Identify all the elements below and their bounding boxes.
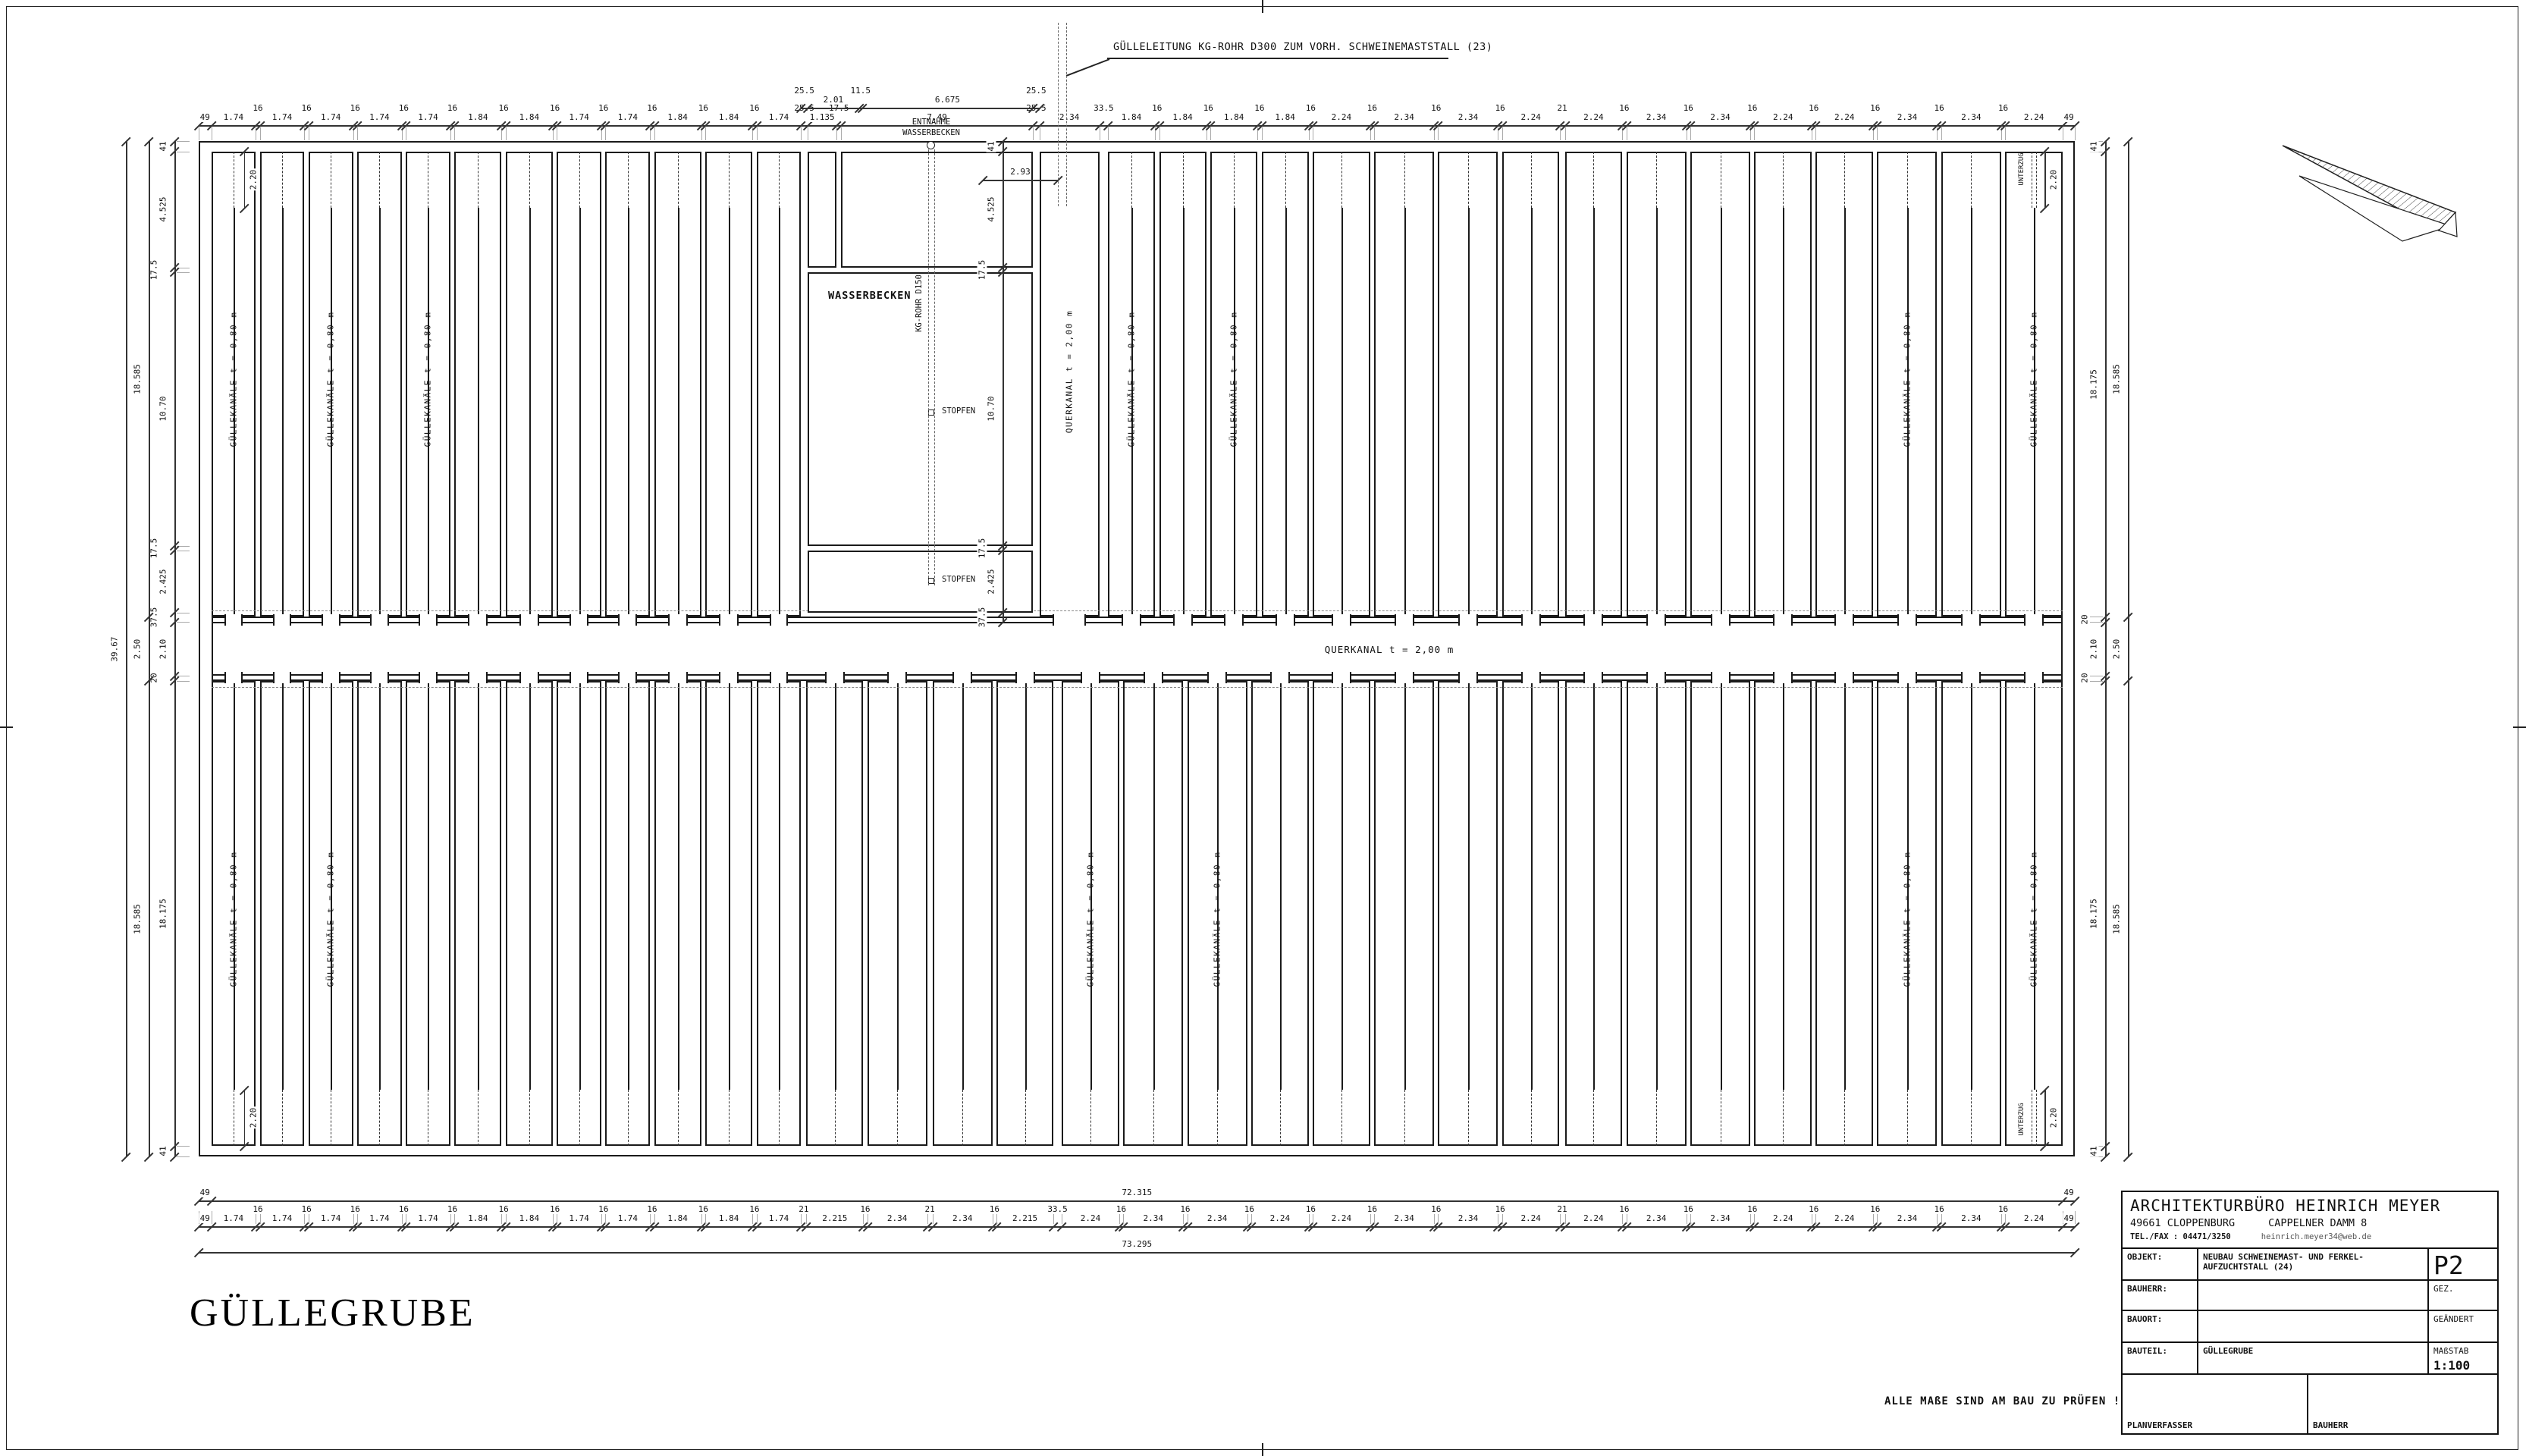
dimension-label: 18.585 — [133, 363, 143, 395]
dimension-label: 2.34 — [1897, 112, 1919, 122]
witness-line — [2090, 617, 2103, 617]
witness-line — [1877, 127, 1878, 140]
dimension-label: 16 — [1808, 1204, 1819, 1214]
witness-line — [177, 613, 190, 613]
dimension-line — [199, 1252, 2075, 1254]
dimension-label: 49 — [199, 1188, 211, 1197]
page-title: GÜLLEGRUBE — [190, 1291, 475, 1335]
stopfen-symbol-2 — [928, 578, 934, 584]
dimension-label: 16 — [1683, 103, 1694, 113]
dimension-label: 18.175 — [2089, 898, 2099, 930]
witness-line — [406, 127, 406, 140]
dimension-label: 16 — [1934, 1204, 1945, 1214]
dimension-label: 16 — [1746, 1204, 1758, 1214]
dimension-label: 49 — [2063, 1188, 2075, 1197]
dimension-label: 16 — [1869, 1204, 1881, 1214]
witness-line — [2090, 676, 2103, 676]
dimension-label: 4.525 — [158, 196, 168, 223]
planverfasser-label: PLANVERFASSER — [2123, 1375, 2308, 1433]
drawing-sheet: GÜLLEKANÄLE t = 0,80 m2.20GÜLLEKANÄLE t … — [0, 0, 2526, 1456]
dimension-line — [174, 141, 176, 1156]
bauort-value — [2197, 1310, 2427, 1341]
dimension-label: 16 — [1367, 103, 1378, 113]
dimension-label: 16 — [1495, 1204, 1506, 1214]
witness-line — [506, 127, 507, 140]
dimension-label: 1.135 — [809, 112, 836, 122]
dimension-label: 1.74 — [417, 112, 439, 122]
witness-line — [2075, 1211, 2076, 1224]
dimension-line — [2105, 141, 2107, 1156]
wasserbecken-label: WASSERBECKEN — [828, 290, 912, 302]
objekt-value-line1: NEUBAU SCHWEINEMAST- UND FERKEL- — [2203, 1252, 2423, 1262]
querkanal-band-label: QUERKANAL t = 2,00 m — [1325, 644, 1454, 655]
objekt-label: OBJEKT: — [2123, 1247, 2197, 1279]
dimension-label: 2.34 — [886, 1213, 908, 1223]
dimension-label: 1.74 — [271, 1213, 293, 1223]
dimension-label: 16 — [1305, 1204, 1316, 1214]
top-pipe-note-underline — [1107, 58, 1448, 59]
dimension-label: 1.84 — [467, 1213, 489, 1223]
dimension-label: 18.175 — [2089, 369, 2099, 400]
dimension-label: 16 — [1869, 103, 1881, 113]
objekt-value-line2: AUFZUCHTSTALL (24) — [2203, 1262, 2423, 1272]
dimension-label: 1.74 — [568, 1213, 590, 1223]
dimension-label: 2.34 — [1207, 1213, 1228, 1223]
dimension-label: 16 — [698, 103, 709, 113]
dimension-label: 41 — [158, 140, 168, 152]
witness-line — [212, 1211, 212, 1224]
dimension-label: 1.84 — [519, 1213, 541, 1223]
dimension-label: 2.34 — [1960, 112, 1982, 122]
dimension-label: 2.50 — [2112, 638, 2122, 660]
frame-tick — [1262, 1443, 1263, 1456]
dimension-label: 1.74 — [369, 112, 391, 122]
witness-line — [177, 681, 190, 682]
dimension-label: 1.74 — [768, 1213, 790, 1223]
dimension-label: 20 — [2080, 613, 2090, 625]
dimension-label: 16 — [252, 103, 263, 113]
witness-line — [260, 127, 261, 140]
dimension-label: 2.24 — [2023, 1213, 2045, 1223]
dimension-label: 1.74 — [320, 112, 342, 122]
dimension-label: 16 — [1934, 103, 1945, 113]
dimension-label: 1.74 — [320, 1213, 342, 1223]
dimension-label: 2.34 — [1709, 1213, 1731, 1223]
dimension-label: 1.74 — [369, 1213, 391, 1223]
dimension-label: 2.24 — [2023, 112, 2045, 122]
dimension-label: 2.215 — [1012, 1213, 1038, 1223]
plan-number: P2 — [2427, 1247, 2497, 1279]
dimension-label: 2.425 — [987, 568, 996, 595]
dimension-label: 21 — [798, 1204, 809, 1214]
witness-line — [1108, 127, 1109, 140]
dimension-label: 4.525 — [987, 196, 996, 223]
geaendert-label: GEÄNDERT — [2427, 1310, 2497, 1341]
dimension-label: 2.24 — [1772, 112, 1794, 122]
dimension-label: 2.24 — [1080, 1213, 1102, 1223]
dimension-label: 16 — [398, 103, 409, 113]
witness-line — [654, 127, 655, 140]
frame-tick — [0, 726, 13, 728]
dimension-label: 49 — [199, 1213, 211, 1223]
gez-label: GEZ. — [2427, 1279, 2497, 1310]
witness-line — [1040, 127, 1040, 140]
dimension-label: 16 — [1618, 103, 1630, 113]
witness-line — [2075, 127, 2076, 140]
stopfen-symbol-1 — [928, 409, 934, 416]
dimension-label: 16 — [549, 1204, 560, 1214]
dimension-label: 10.70 — [158, 396, 168, 422]
witness-line — [705, 127, 706, 140]
bauteil-label: BAUTEIL: — [2123, 1341, 2197, 1373]
dimension-label: 18.585 — [2112, 903, 2122, 935]
dimension-label: 16 — [1618, 1204, 1630, 1214]
dimension-label: 1.84 — [519, 112, 541, 122]
dimension-label: 16 — [1203, 103, 1214, 113]
witness-line — [1565, 127, 1566, 140]
dimension-label: 2.50 — [133, 638, 143, 660]
dimension-label: 21 — [1556, 103, 1567, 113]
dimension-label: 2.10 — [158, 638, 168, 660]
firm-city: 49661 CLOPPENBURG — [2130, 1217, 2235, 1229]
dimension-label: 16 — [598, 103, 609, 113]
witness-line — [2005, 127, 2006, 140]
witness-line — [1313, 127, 1313, 140]
witness-line — [1754, 127, 1755, 140]
witness-line — [177, 272, 190, 273]
dimension-label: 16 — [549, 103, 560, 113]
dimension-label: 41 — [2089, 140, 2099, 152]
witness-line — [1627, 127, 1627, 140]
dimension-label: 16 — [1244, 1204, 1255, 1214]
dimension-label: 2.215 — [821, 1213, 848, 1223]
dimension-label: 2.34 — [952, 1213, 974, 1223]
dimension-label: 2.24 — [1772, 1213, 1794, 1223]
witness-line — [1100, 127, 1100, 140]
dimension-label: 16 — [698, 1204, 709, 1214]
dimension-label: 37.5 — [149, 607, 159, 629]
entnahme-label-line2: WASSERBECKEN — [902, 128, 960, 137]
witness-line — [801, 127, 802, 140]
dimension-label: 18.585 — [2112, 363, 2122, 395]
dimension-label: 2.34 — [1897, 1213, 1919, 1223]
dimension-label: 49 — [2063, 112, 2075, 122]
dimension-label: 1.84 — [667, 1213, 689, 1223]
kg-rohr-d150-pipe — [934, 149, 935, 585]
dimension-label: 2.34 — [1059, 112, 1081, 122]
dimension-label: 2.34 — [1646, 112, 1668, 122]
dimension-label: 1.74 — [568, 112, 590, 122]
dimension-label: 2.24 — [1331, 1213, 1353, 1223]
bauherr-label: BAUHERR: — [2123, 1279, 2197, 1310]
dimension-label: 2.24 — [1834, 1213, 1856, 1223]
dimension-label: 1.74 — [271, 112, 293, 122]
witness-line — [177, 141, 190, 142]
dimension-label: 39.67 — [110, 635, 120, 662]
dimension-label: 72.315 — [1121, 1188, 1153, 1197]
title-block: ARCHITEKTURBÜRO HEINRICH MEYER 49661 CLO… — [2121, 1191, 2499, 1435]
witness-line — [557, 127, 557, 140]
dimension-label: 6.675 — [934, 95, 961, 105]
dimension-label: 2.34 — [1960, 1213, 1982, 1223]
dimension-label: 16 — [598, 1204, 609, 1214]
dimension-label: 2.10 — [2089, 638, 2099, 660]
dimension-label: 16 — [398, 1204, 409, 1214]
dimension-label: 1.84 — [1223, 112, 1245, 122]
dimension-label: 2.24 — [1583, 112, 1605, 122]
witness-line — [1815, 127, 1816, 140]
witness-line — [177, 152, 190, 152]
dimension-line — [199, 125, 2075, 127]
dimension-label: 1.84 — [667, 112, 689, 122]
dimension-label: 2.24 — [1583, 1213, 1605, 1223]
dimension-label: 1.84 — [718, 112, 740, 122]
dimension-label: 16 — [1254, 103, 1265, 113]
witness-line — [177, 551, 190, 551]
stopfen-label-2: STOPFEN — [942, 575, 975, 584]
dimension-label: 16 — [859, 1204, 871, 1214]
dimension-label: 2.24 — [1520, 1213, 1542, 1223]
dimension-label: 16 — [748, 1204, 760, 1214]
dimension-label: 10.70 — [987, 396, 996, 422]
dimension-label: 2.24 — [1331, 112, 1353, 122]
firm-name: ARCHITEKTURBÜRO HEINRICH MEYER — [2130, 1197, 2490, 1215]
dimension-line — [983, 180, 1058, 181]
bauherr-footer-label: BAUHERR — [2308, 1375, 2497, 1433]
footnote: ALLE MAßE SIND AM BAU ZU PRÜFEN ! — [1884, 1395, 2120, 1407]
dimension-label: 16 — [1179, 1204, 1191, 1214]
dimension-line — [2128, 141, 2129, 1156]
dimension-label: 37.5 — [977, 607, 987, 629]
dimension-label: 2.93 — [1009, 167, 1031, 177]
dimension-label: 16 — [350, 1204, 361, 1214]
firm-phone: TEL./FAX : 04471/3250 — [2130, 1232, 2231, 1241]
witness-line — [177, 622, 190, 623]
witness-line — [605, 127, 606, 140]
dimension-label: 20 — [2080, 673, 2090, 684]
witness-line — [1374, 127, 1375, 140]
title-block-header: ARCHITEKTURBÜRO HEINRICH MEYER 49661 CLO… — [2123, 1192, 2497, 1247]
dimension-label: 17.5 — [149, 259, 159, 281]
dimension-label: 1.84 — [718, 1213, 740, 1223]
witness-line — [212, 127, 212, 140]
dimension-label: 16 — [1430, 1204, 1442, 1214]
dimension-label: 49 — [199, 112, 211, 122]
dimension-line — [126, 141, 127, 1156]
dimension-label: 1.74 — [617, 112, 639, 122]
dimension-line — [199, 1200, 2075, 1202]
dimension-label: 17.5 — [149, 537, 159, 559]
dimension-label: 16 — [1746, 103, 1758, 113]
dimension-label: 2.24 — [1520, 112, 1542, 122]
dimension-label: 16 — [497, 1204, 509, 1214]
dimension-label: 2.01 — [823, 95, 845, 105]
firm-street: CAPPELNER DAMM 8 — [2268, 1217, 2367, 1229]
dimension-label: 16 — [301, 1204, 312, 1214]
top-pipe-note: GÜLLELEITUNG KG-ROHR D300 ZUM VORH. SCHW… — [1113, 41, 1492, 53]
dimension-label: 2.34 — [1709, 112, 1731, 122]
dimension-label: 16 — [1683, 1204, 1694, 1214]
frame-tick — [1262, 0, 1263, 13]
dimension-label: 16 — [1367, 1204, 1378, 1214]
witness-line — [757, 127, 758, 140]
dimension-label: 16 — [646, 103, 657, 113]
dimension-label: 16 — [447, 103, 458, 113]
dimension-label: 16 — [1997, 1204, 2009, 1214]
dimension-label: 41 — [987, 140, 996, 152]
dimension-label: 1.84 — [1274, 112, 1296, 122]
north-arrow-icon — [2275, 130, 2472, 259]
dimension-label: 16 — [1430, 103, 1442, 113]
kg-rohr-d150-label: KG-ROHR D150 — [915, 275, 924, 332]
dimension-label: 16 — [1997, 103, 2009, 113]
witness-line — [1159, 127, 1160, 140]
dimension-label: 25.5 — [1025, 86, 1047, 96]
dimension-label: 21 — [1556, 1204, 1567, 1214]
dimension-label: 16 — [1808, 103, 1819, 113]
dimension-label: 11.5 — [850, 86, 872, 96]
dimension-label: 1.74 — [768, 112, 790, 122]
witness-line — [2063, 127, 2063, 140]
massstab-label: MAßSTAB — [2433, 1346, 2493, 1356]
witness-line — [1941, 127, 1942, 140]
witness-line — [177, 1156, 190, 1157]
witness-line — [2090, 622, 2103, 623]
dimension-label: 17.5 — [977, 537, 987, 559]
dimension-label: 16 — [989, 1204, 1000, 1214]
witness-line — [1262, 127, 1263, 140]
witness-line — [2090, 681, 2103, 682]
kg-rohr-d300-pipe — [1058, 23, 1059, 206]
bauherr-value — [2197, 1279, 2427, 1310]
dimension-label: 2.24 — [1834, 112, 1856, 122]
dimension-label: 2.34 — [1393, 1213, 1415, 1223]
dimension-line — [801, 108, 1039, 109]
witness-line — [199, 127, 199, 140]
dimension-label: 16 — [646, 1204, 657, 1214]
dimension-label: 2.24 — [1269, 1213, 1291, 1223]
dimension-label: 16 — [447, 1204, 458, 1214]
dimension-label: 17.5 — [977, 259, 987, 281]
bauteil-value: GÜLLEGRUBE — [2197, 1341, 2427, 1373]
firm-email: heinrich.meyer34@web.de — [2261, 1232, 2371, 1241]
witness-line — [1210, 127, 1211, 140]
dimension-label: 1.84 — [467, 112, 489, 122]
dimension-label: 1.74 — [223, 112, 245, 122]
dimension-label: 25.5 — [793, 86, 815, 96]
dimension-label: 16 — [497, 103, 509, 113]
witness-line — [357, 127, 358, 140]
dimension-label: 16 — [252, 1204, 263, 1214]
dimension-label: 41 — [158, 1146, 168, 1157]
witness-line — [808, 127, 808, 140]
witness-line — [454, 127, 455, 140]
dimension-label: 16 — [301, 103, 312, 113]
dimension-label: 1.84 — [1121, 112, 1143, 122]
frame-tick — [2513, 726, 2526, 728]
dimension-label: 1.84 — [1172, 112, 1194, 122]
kg-rohr-d150-pipe — [928, 149, 929, 585]
dimension-label: 1.74 — [417, 1213, 439, 1223]
dimension-label: 33.5 — [1046, 1204, 1068, 1214]
bauort-label: BAUORT: — [2123, 1310, 2197, 1341]
objekt-value: NEUBAU SCHWEINEMAST- UND FERKEL- AUFZUCH… — [2197, 1247, 2427, 1279]
dimension-label: 18.175 — [158, 898, 168, 930]
witness-line — [1502, 127, 1503, 140]
massstab-cell: MAßSTAB 1:100 — [2427, 1341, 2497, 1373]
entnahme-symbol — [927, 141, 935, 149]
dimension-line — [149, 141, 150, 1156]
entnahme-label-line1: ENTNAHME — [912, 118, 951, 127]
stopfen-label-1: STOPFEN — [942, 406, 975, 416]
massstab-value: 1:100 — [2433, 1358, 2493, 1373]
dimension-label: 2.425 — [158, 568, 168, 595]
dimension-label: 1.74 — [617, 1213, 639, 1223]
witness-line — [1690, 127, 1691, 140]
witness-line — [1438, 127, 1439, 140]
dimension-label: 2.34 — [1458, 112, 1480, 122]
dimension-label: 49 — [2063, 1213, 2075, 1223]
dimension-label: 16 — [1305, 103, 1316, 113]
dimension-label: 2.34 — [1142, 1213, 1164, 1223]
dimension-label: 2.34 — [1646, 1213, 1668, 1223]
dimension-label: 33.5 — [1093, 103, 1115, 113]
dimension-label: 2.34 — [1458, 1213, 1480, 1223]
dimension-label: 21 — [924, 1204, 936, 1214]
dimension-label: 73.295 — [1121, 1239, 1153, 1249]
dimension-label: 16 — [1151, 103, 1163, 113]
witness-line — [309, 127, 309, 140]
dimension-label: 16 — [1116, 1204, 1127, 1214]
dimension-label: 2.34 — [1393, 112, 1415, 122]
dimension-label: 18.585 — [133, 903, 143, 935]
dimension-label: 16 — [748, 103, 760, 113]
dimension-label: 16 — [350, 103, 361, 113]
kg-rohr-d300-pipe — [1066, 23, 1067, 206]
dimension-line — [199, 1226, 2075, 1228]
witness-line — [177, 1146, 190, 1147]
dimension-label: 1.74 — [223, 1213, 245, 1223]
witness-line — [841, 127, 842, 140]
dimension-label: 41 — [2089, 1146, 2099, 1157]
dimension-label: 16 — [1495, 103, 1506, 113]
witness-line — [1033, 127, 1034, 140]
